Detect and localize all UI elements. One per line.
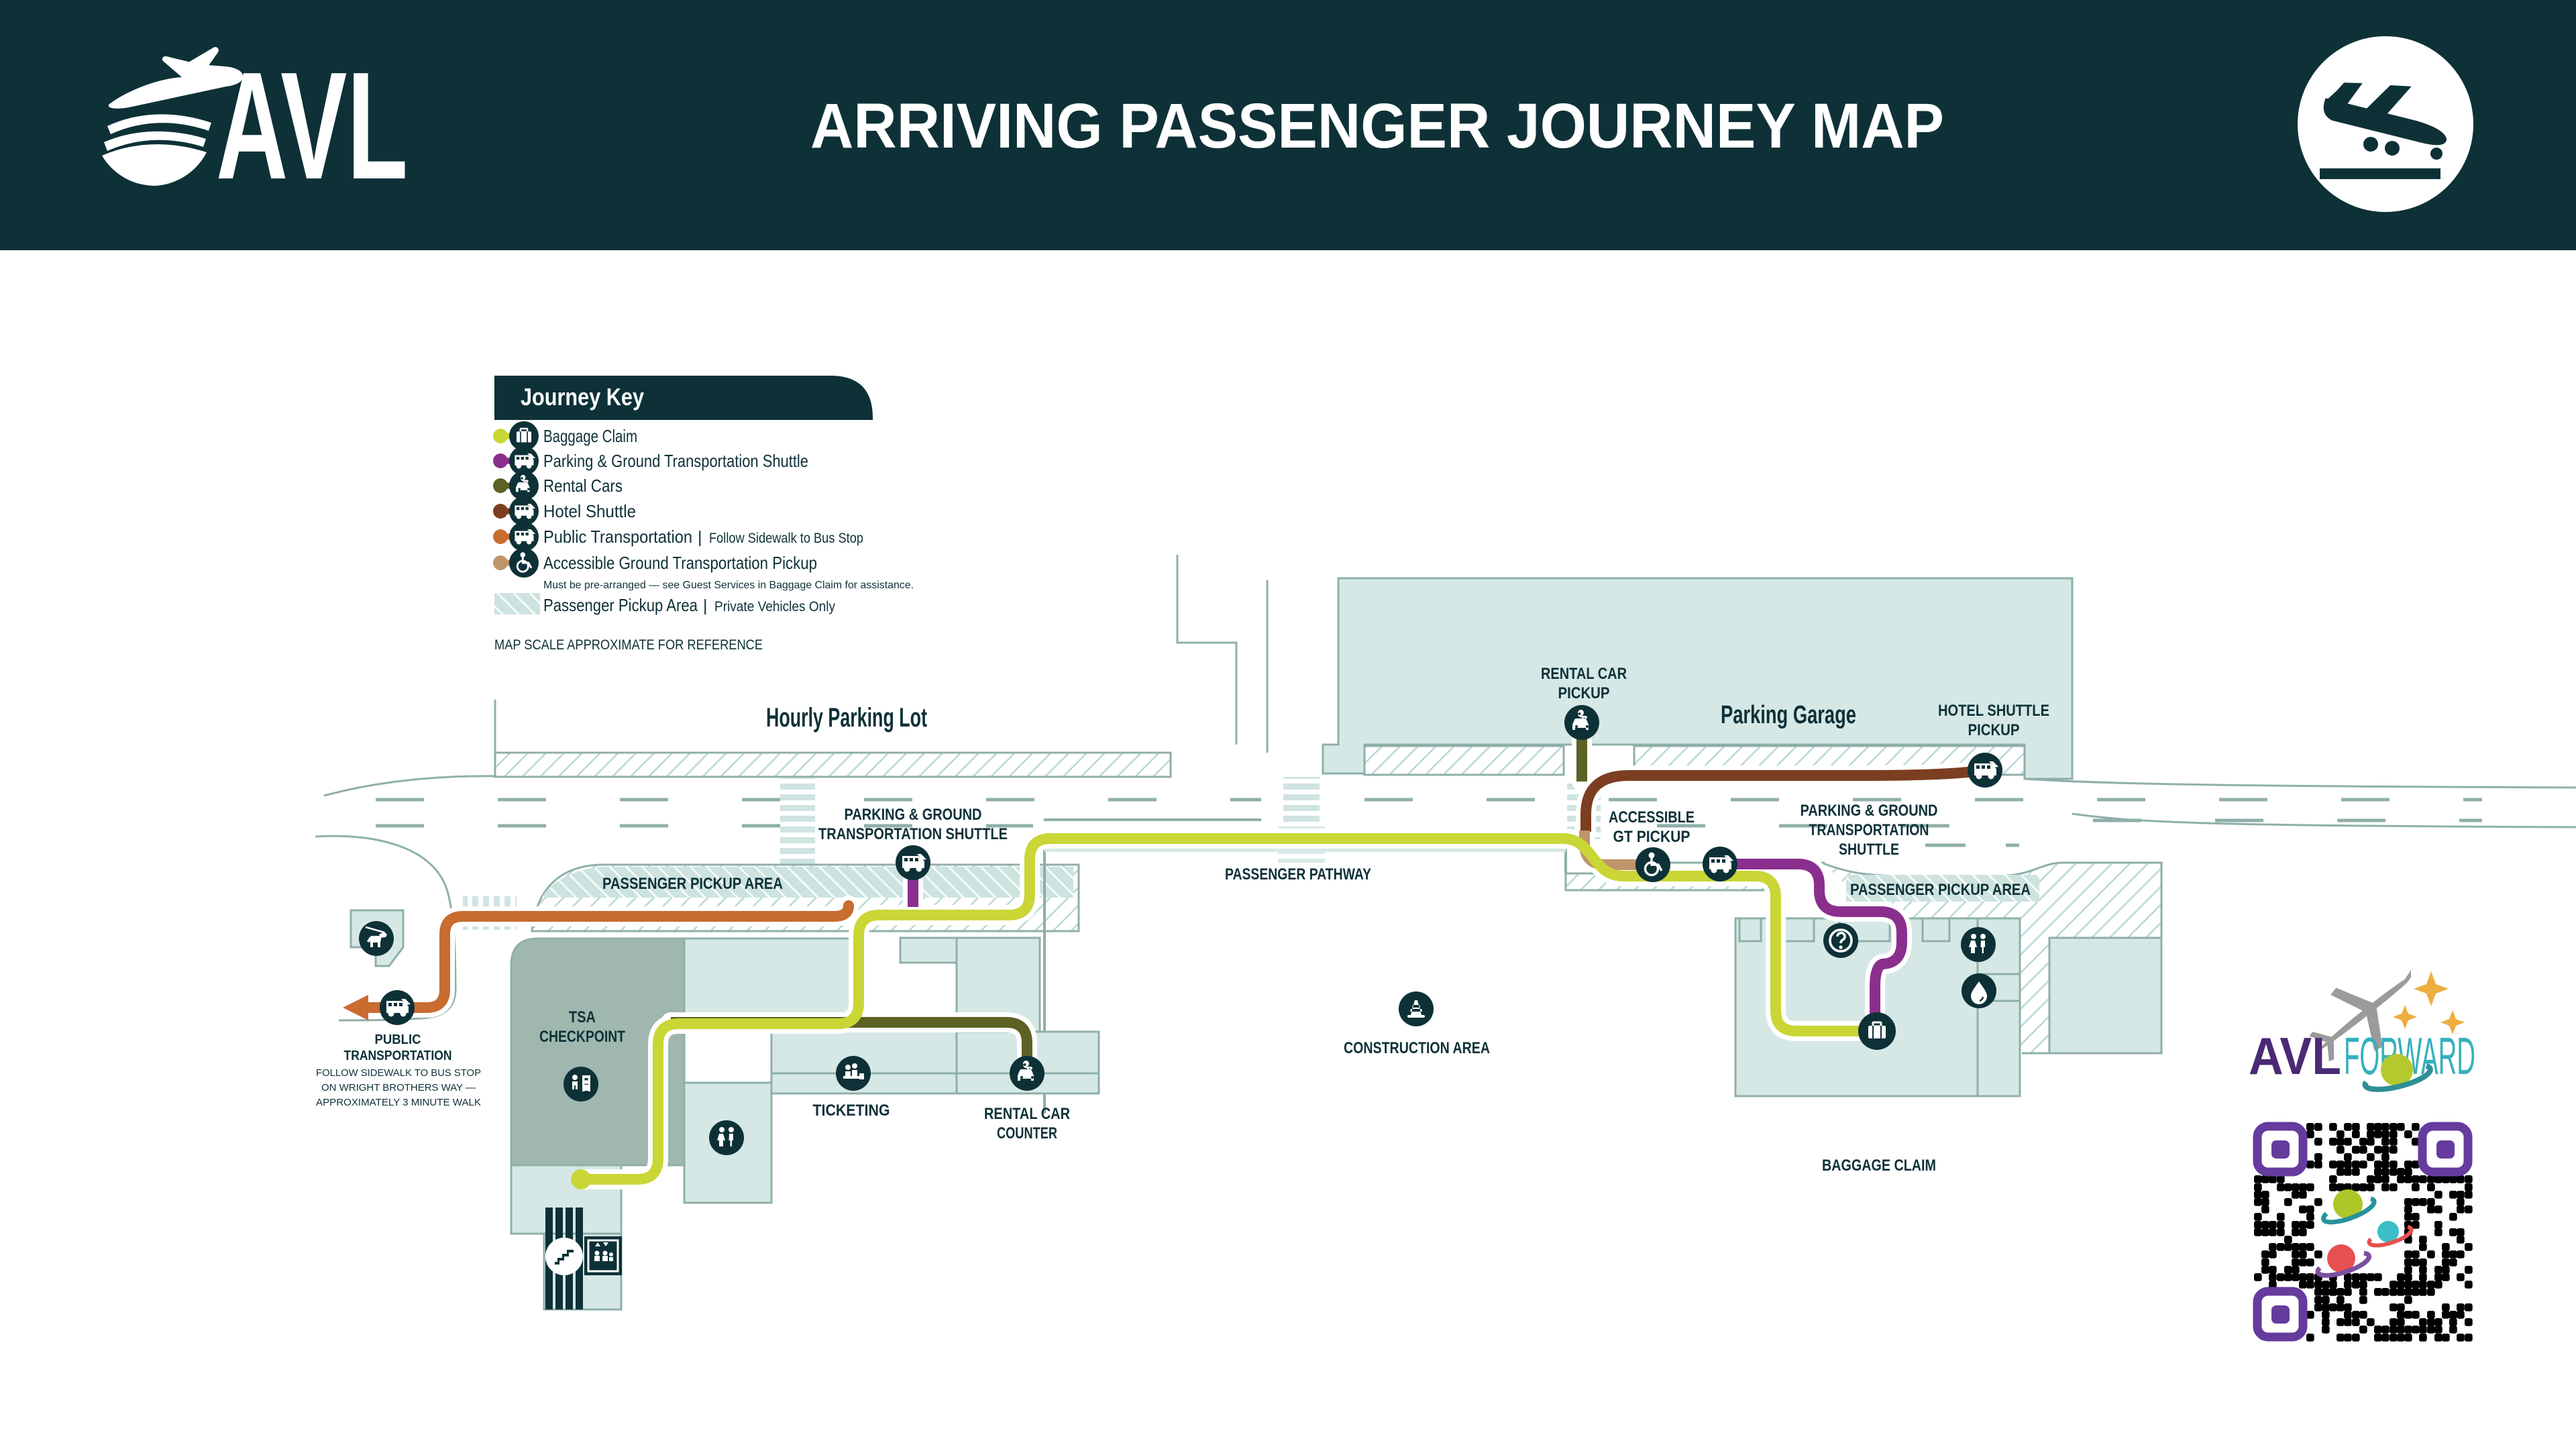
svg-text:ON WRIGHT BROTHERS WAY —: ON WRIGHT BROTHERS WAY — xyxy=(321,1082,476,1093)
svg-text:Journey Key: Journey Key xyxy=(521,383,644,411)
svg-text:TRANSPORTATION: TRANSPORTATION xyxy=(344,1049,452,1063)
svg-text:SHUTTLE: SHUTTLE xyxy=(1839,841,1899,859)
svg-text:Public Transportation: Public Transportation xyxy=(543,527,692,547)
svg-text:TICKETING: TICKETING xyxy=(813,1102,890,1120)
svg-text:Parking Garage: Parking Garage xyxy=(1721,701,1856,729)
svg-text:FOLLOW SIDEWALK TO BUS STOP: FOLLOW SIDEWALK TO BUS STOP xyxy=(316,1067,481,1079)
svg-text:PASSENGER PICKUP AREA: PASSENGER PICKUP AREA xyxy=(1850,881,2031,899)
svg-text:ACCESSIBLE: ACCESSIBLE xyxy=(1609,808,1695,826)
svg-text:Rental Cars: Rental Cars xyxy=(543,476,623,496)
svg-text:Accessible Ground Transportati: Accessible Ground Transportation Pickup xyxy=(543,553,817,573)
svg-text:RENTAL CAR: RENTAL CAR xyxy=(984,1105,1070,1123)
svg-text:AVL: AVL xyxy=(216,41,408,211)
svg-text:MAP SCALE APPROXIMATE FOR REFE: MAP SCALE APPROXIMATE FOR REFERENCE xyxy=(494,637,763,653)
svg-text:Hotel Shuttle: Hotel Shuttle xyxy=(543,501,636,521)
svg-text:AVL: AVL xyxy=(2249,1026,2341,1085)
svg-text:Must be pre-arranged — see Gue: Must be pre-arranged — see Guest Service… xyxy=(543,580,914,591)
svg-text:Baggage Claim: Baggage Claim xyxy=(543,426,637,446)
svg-text:Follow Sidewalk to Bus Stop: Follow Sidewalk to Bus Stop xyxy=(709,531,863,546)
svg-text:GT PICKUP: GT PICKUP xyxy=(1613,828,1690,846)
svg-text:PASSENGER PICKUP AREA: PASSENGER PICKUP AREA xyxy=(602,875,783,893)
svg-text:|: | xyxy=(703,596,708,615)
svg-text:APPROXIMATELY 3 MINUTE WALK: APPROXIMATELY 3 MINUTE WALK xyxy=(316,1097,481,1108)
svg-text:PUBLIC: PUBLIC xyxy=(375,1032,421,1047)
svg-text:PARKING & GROUND: PARKING & GROUND xyxy=(1801,802,1938,820)
svg-text:HOTEL SHUTTLE: HOTEL SHUTTLE xyxy=(1938,702,2049,720)
svg-text:CHECKPOINT: CHECKPOINT xyxy=(539,1028,625,1046)
svg-text:PARKING & GROUND: PARKING & GROUND xyxy=(845,806,982,824)
svg-text:CONSTRUCTION AREA: CONSTRUCTION AREA xyxy=(1344,1039,1490,1057)
svg-text:|: | xyxy=(698,528,702,547)
svg-text:PASSENGER PATHWAY: PASSENGER PATHWAY xyxy=(1225,865,1371,883)
svg-text:TRANSPORTATION SHUTTLE: TRANSPORTATION SHUTTLE xyxy=(818,825,1008,843)
svg-text:PICKUP: PICKUP xyxy=(1558,684,1610,702)
svg-text:TSA: TSA xyxy=(569,1008,596,1026)
svg-text:RENTAL CAR: RENTAL CAR xyxy=(1541,665,1627,683)
svg-text:TRANSPORTATION: TRANSPORTATION xyxy=(1809,821,1929,839)
svg-text:Passenger Pickup Area: Passenger Pickup Area xyxy=(543,595,698,615)
svg-text:Parking & Ground Transportatio: Parking & Ground Transportation Shuttle xyxy=(543,451,808,471)
svg-text:ARRIVING PASSENGER JOURNEY MAP: ARRIVING PASSENGER JOURNEY MAP xyxy=(810,91,1944,162)
svg-text:Hourly Parking Lot: Hourly Parking Lot xyxy=(766,703,927,733)
svg-text:PICKUP: PICKUP xyxy=(1968,721,2020,739)
svg-text:COUNTER: COUNTER xyxy=(997,1124,1057,1142)
svg-text:BAGGAGE CLAIM: BAGGAGE CLAIM xyxy=(1822,1157,1936,1175)
svg-text:Private Vehicles Only: Private Vehicles Only xyxy=(714,599,835,614)
